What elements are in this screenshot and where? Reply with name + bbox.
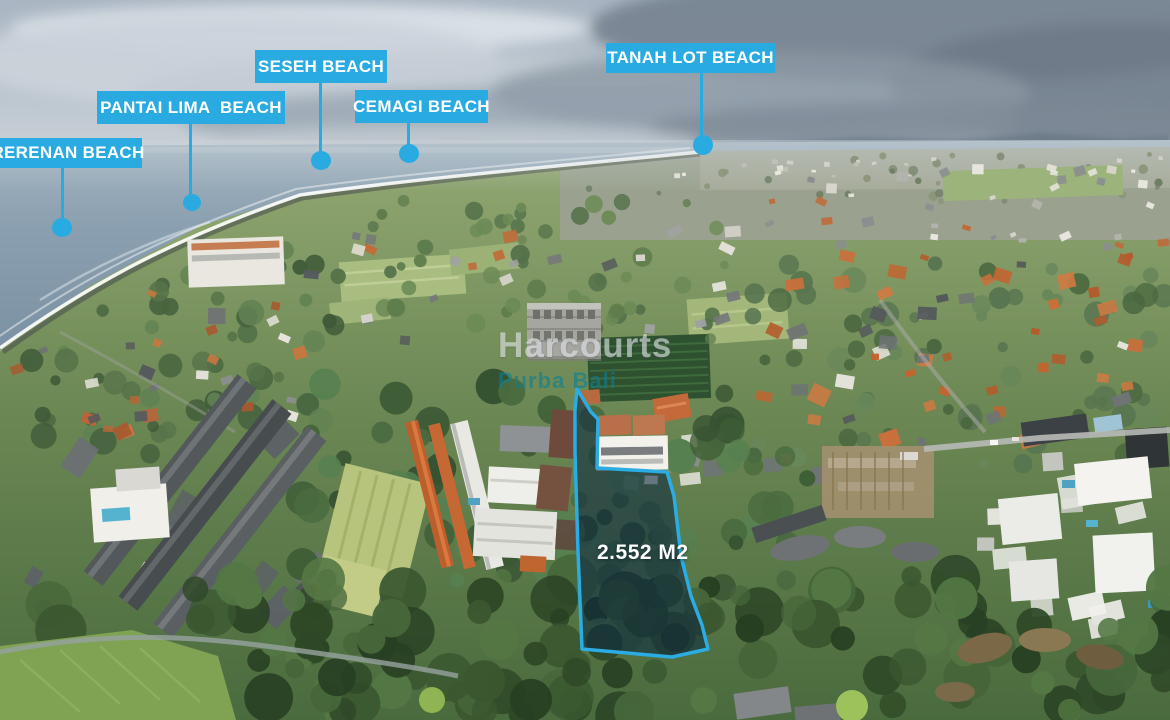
marker-label: CEMAGI BEACH [355, 90, 488, 123]
marker-label: PANTAI LIMA BEACH [97, 91, 285, 124]
plot-area-label: 2.552 M2 [597, 541, 689, 565]
marker-label-text: TANAH LOT BEACH [607, 48, 774, 68]
marker-line [700, 73, 703, 137]
marker-dot [52, 218, 72, 237]
marker-dot [399, 144, 419, 163]
marker-dot [311, 151, 331, 170]
marker-label-text: RERENAN BEACH [0, 143, 145, 163]
marker-dot [693, 135, 713, 155]
marker-line [61, 168, 64, 220]
marker-label-text: SESEH BEACH [258, 57, 384, 77]
marker-line [319, 83, 322, 154]
marker-label: SESEH BEACH [255, 50, 387, 83]
marker-label: RERENAN BEACH [0, 138, 142, 168]
marker-label-text: CEMAGI BEACH [353, 97, 490, 117]
marker-label-text: PANTAI LIMA BEACH [100, 98, 282, 118]
marker-line [189, 124, 192, 196]
aerial-property-photo: Harcourts Purba Bali 2.552 M2 RERENAN BE… [0, 0, 1170, 720]
marker-label: TANAH LOT BEACH [606, 43, 775, 73]
marker-dot [183, 194, 201, 211]
